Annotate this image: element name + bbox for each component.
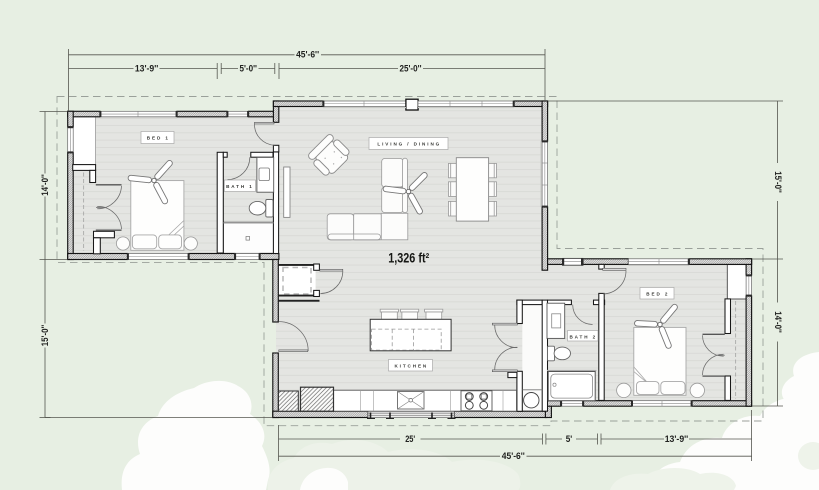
svg-text:13'-9'': 13'-9'' <box>665 434 689 444</box>
svg-text:25': 25' <box>405 434 415 444</box>
svg-text:45'-6'': 45'-6'' <box>296 50 319 60</box>
svg-text:25'-0'': 25'-0'' <box>400 64 422 74</box>
svg-text:15'-0'': 15'-0'' <box>773 171 783 193</box>
svg-text:BATH 1: BATH 1 <box>226 184 254 189</box>
svg-text:14'-0'': 14'-0'' <box>773 311 783 333</box>
svg-text:KITCHEN: KITCHEN <box>394 363 428 368</box>
svg-text:5': 5' <box>566 434 573 444</box>
svg-text:BED 1: BED 1 <box>147 136 170 141</box>
svg-text:45'-6'': 45'-6'' <box>502 451 525 461</box>
svg-text:15'-0'': 15'-0'' <box>40 325 50 347</box>
svg-text:1,326 ft²: 1,326 ft² <box>388 249 429 265</box>
svg-text:LIVING / DINING: LIVING / DINING <box>377 142 441 147</box>
svg-text:13'-9'': 13'-9'' <box>135 64 159 74</box>
svg-text:5'-0'': 5'-0'' <box>239 64 257 74</box>
svg-text:14'-0'': 14'-0'' <box>40 174 50 196</box>
svg-text:BATH 2: BATH 2 <box>569 334 597 339</box>
svg-text:BED 2: BED 2 <box>646 292 669 297</box>
